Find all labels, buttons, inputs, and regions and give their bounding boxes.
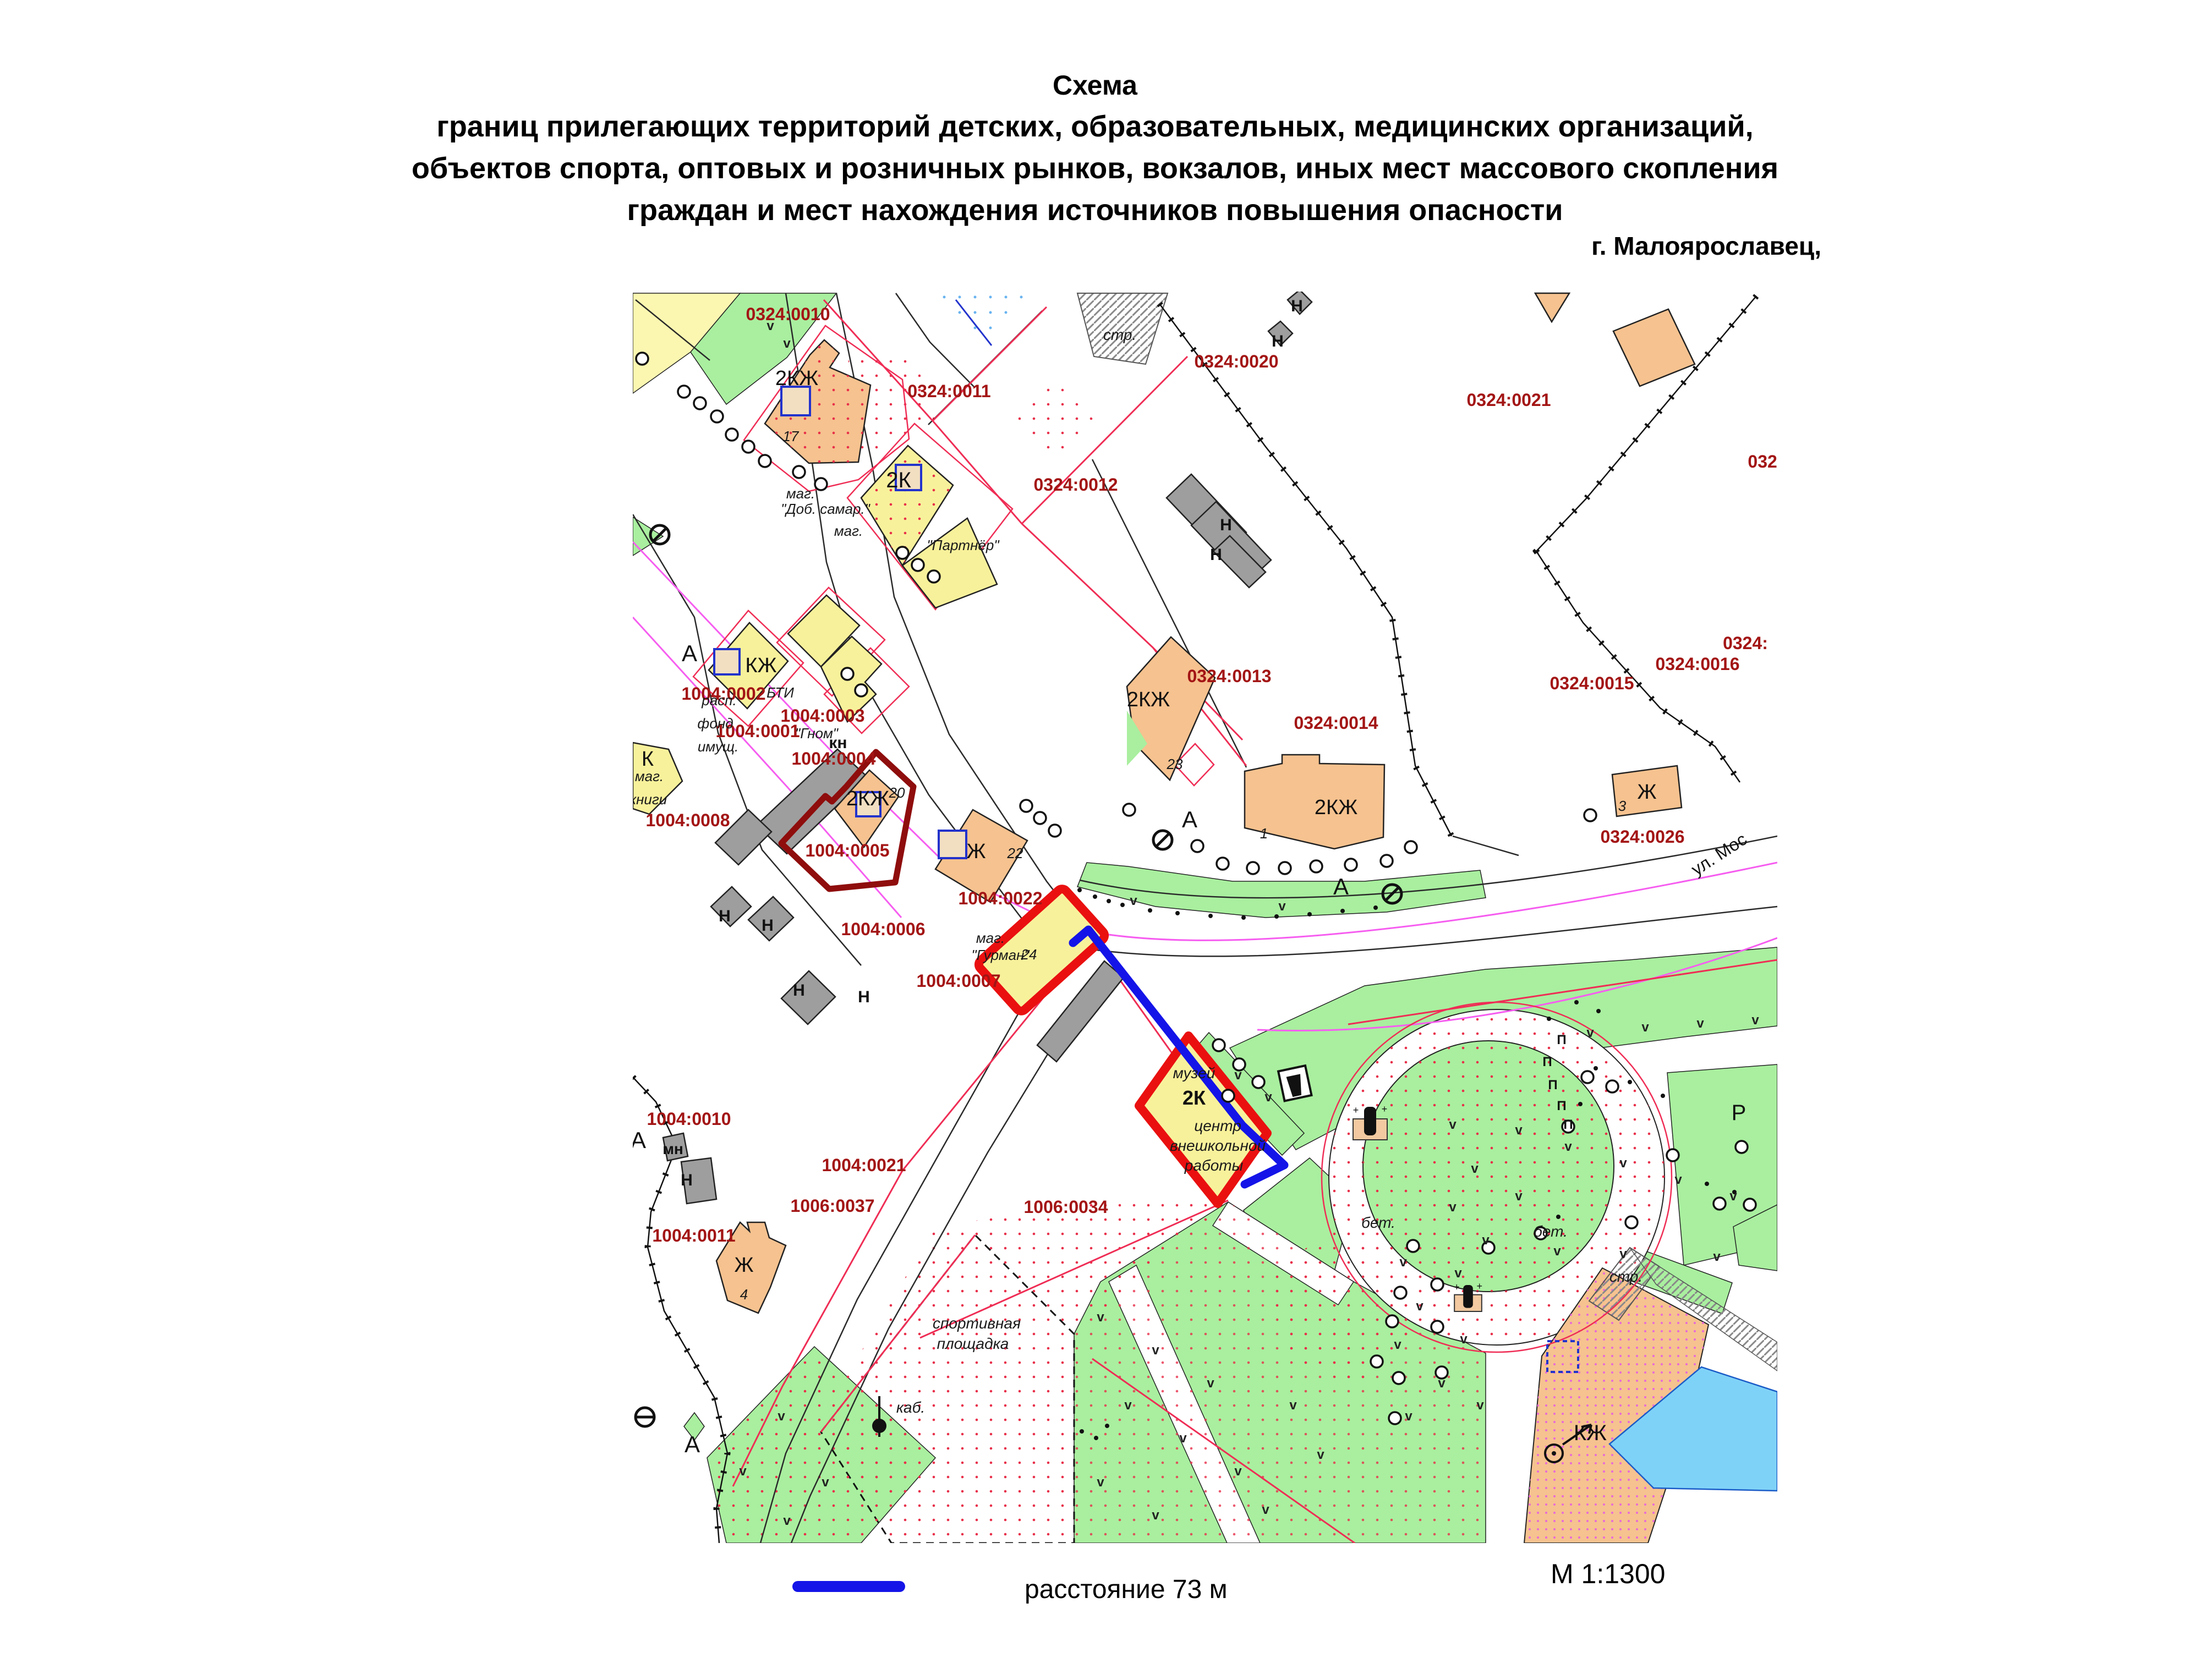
- grass-icon: v: [1471, 1161, 1479, 1176]
- map-label: КЖ: [1574, 1421, 1607, 1445]
- grass-icon: v: [1234, 1068, 1242, 1083]
- map-label: Н: [719, 907, 731, 925]
- grass-icon: v: [1449, 1200, 1457, 1215]
- grass-icon: v: [1476, 1398, 1484, 1413]
- map-label: 17: [783, 428, 800, 444]
- map-label: Н: [762, 916, 774, 935]
- grass-icon: v: [1482, 1233, 1490, 1248]
- map-label: 1004:0007: [916, 971, 1000, 991]
- bush-icon: [1556, 1215, 1561, 1219]
- sign-frame-symbol: [1278, 1066, 1311, 1101]
- map-label: Ж: [966, 840, 985, 863]
- map-label: Н: [1210, 546, 1222, 564]
- map-label: Н: [1220, 516, 1232, 534]
- tree-icon: [1389, 1412, 1401, 1424]
- map-label: 0324:0020: [1194, 352, 1278, 371]
- tree-icon: [815, 478, 827, 490]
- map-label: 1004:0010: [647, 1109, 731, 1129]
- map-scale-label: М 1:1300: [1551, 1558, 1665, 1590]
- map-label: 2КЖ: [775, 367, 818, 390]
- map-label: 0324:0021: [1466, 390, 1551, 410]
- grass-icon: v: [1130, 893, 1137, 908]
- map-label: площадка: [937, 1335, 1009, 1352]
- map-label: 0324:0011: [907, 381, 990, 401]
- bush-icon: [1208, 914, 1213, 918]
- map-label: К: [642, 748, 654, 771]
- vent-square-icon: [781, 387, 810, 415]
- map-label: 0324:: [1723, 633, 1768, 653]
- legend-distance-line-swatch: [792, 1581, 905, 1592]
- map-label: Н: [1272, 332, 1284, 350]
- page-title-line2: границ прилегающих территорий детских, о…: [0, 106, 2190, 147]
- svg-text:+: +: [1382, 1103, 1388, 1114]
- tree-icon: [1393, 1372, 1405, 1384]
- grass-icon: v: [1207, 1376, 1214, 1391]
- tree-icon: [1247, 862, 1259, 874]
- map-label: музей: [1173, 1064, 1216, 1081]
- grass-icon: v: [1289, 1398, 1297, 1413]
- map-label: 0324: [1748, 452, 1787, 471]
- map-label: работы: [1184, 1157, 1244, 1174]
- tree-icon: [1049, 825, 1061, 837]
- tree-icon: [1735, 1141, 1748, 1153]
- map-label: Н: [858, 988, 870, 1006]
- monument-icon: ++: [1353, 1103, 1388, 1140]
- tree-icon: [1381, 855, 1393, 867]
- bench-icon: П: [1563, 1117, 1573, 1132]
- map-label: расп.: [701, 692, 736, 709]
- grass-icon: v: [1460, 1332, 1468, 1347]
- tree-icon: [855, 684, 867, 696]
- grass-icon: v: [1454, 1266, 1462, 1281]
- bush-icon: [1077, 888, 1082, 892]
- tree-icon: [636, 353, 648, 365]
- bush-icon: [1705, 1182, 1709, 1186]
- map-label: 0324:0014: [1294, 713, 1378, 733]
- map-label: маг.: [834, 523, 863, 539]
- tree-icon: [1713, 1198, 1726, 1210]
- map-label: имущ.: [698, 738, 738, 755]
- bush-icon: [1307, 912, 1312, 916]
- map-label: Ж: [734, 1254, 753, 1277]
- grass-icon: v: [1729, 1189, 1737, 1204]
- map-label: маг.: [786, 485, 815, 502]
- svg-text:+: +: [1353, 1105, 1359, 1116]
- map-label: спортивная: [933, 1315, 1021, 1332]
- bush-icon: [1148, 908, 1152, 913]
- tree-icon: [1581, 1071, 1594, 1083]
- map-label: "Доб. самар.": [781, 501, 870, 517]
- grass-icon: v: [1234, 1464, 1242, 1479]
- bush-icon: [1093, 894, 1097, 899]
- grass-icon: v: [1553, 1244, 1561, 1259]
- bush-icon: [1105, 1424, 1109, 1428]
- map-label: 1004:0006: [841, 919, 925, 939]
- page-title-line4: граждан и мест нахождения источников пов…: [0, 189, 2190, 231]
- grass-icon: v: [739, 1464, 747, 1479]
- bush-icon: [1574, 1000, 1579, 1004]
- tree-icon: [711, 410, 723, 422]
- city-label: г. Малоярославец,: [0, 231, 1821, 261]
- bush-icon: [1107, 899, 1111, 903]
- grass-icon: v: [1262, 1502, 1269, 1517]
- grass-icon: v: [822, 1475, 829, 1490]
- map-label: стр.: [1103, 326, 1136, 343]
- grass-icon: v: [1751, 1013, 1759, 1028]
- grass-icon: v: [1152, 1343, 1159, 1358]
- svg-text:+: +: [1477, 1281, 1483, 1292]
- map-label: 23: [1167, 756, 1183, 772]
- tree-icon: [1222, 1090, 1234, 1102]
- bush-icon: [1596, 1009, 1601, 1013]
- map-label: 0324:0012: [1033, 475, 1118, 495]
- bush-icon: [1628, 1080, 1632, 1084]
- map-label: 20: [889, 784, 905, 801]
- grass-icon: v: [1515, 1123, 1523, 1138]
- grass-icon: v: [1097, 1310, 1104, 1325]
- map-label: книги: [629, 791, 667, 808]
- grass-icon: v: [1152, 1508, 1159, 1523]
- tree-icon: [1371, 1355, 1383, 1368]
- grass-icon: v: [1438, 1376, 1446, 1391]
- bush-icon: [1373, 905, 1378, 910]
- grass-icon: v: [1586, 1025, 1594, 1040]
- map-label: маг.: [635, 768, 664, 784]
- map-label: 2КЖ: [846, 787, 889, 810]
- tree-icon: [1405, 841, 1417, 853]
- map-label: А: [682, 640, 697, 666]
- tree-icon: [1606, 1080, 1618, 1092]
- bush-icon: [1340, 909, 1345, 913]
- bush-icon: [1175, 911, 1180, 915]
- tree-icon: [1345, 859, 1357, 871]
- bench-icon: П: [1548, 1078, 1557, 1092]
- bush-icon: [1120, 903, 1125, 907]
- grass-icon: v: [1399, 1255, 1407, 1270]
- bush-icon: [1661, 1094, 1665, 1098]
- map-label: 4: [740, 1286, 748, 1303]
- bush-icon: [1094, 1436, 1098, 1440]
- map-label: 1: [1260, 825, 1268, 842]
- map-label: 2К: [886, 468, 911, 492]
- map-label: бет.: [1534, 1223, 1568, 1240]
- map-label: А: [631, 1127, 646, 1153]
- page-title: Схема: [0, 65, 2190, 106]
- map-label: маг.: [976, 930, 1005, 946]
- grass-icon: v: [1124, 1398, 1132, 1413]
- map-label: А: [685, 1431, 700, 1457]
- map-label: 0324:0015: [1550, 673, 1634, 693]
- grass-icon: v: [783, 1513, 791, 1528]
- tree-icon: [1191, 840, 1203, 852]
- grass-icon: v: [1278, 899, 1286, 914]
- map-label: Р: [1732, 1101, 1746, 1125]
- grass-icon: v: [1405, 1409, 1412, 1424]
- grass-icon: v: [1317, 1447, 1324, 1462]
- map-label: внешкольной: [1170, 1137, 1266, 1154]
- tree-icon: [1252, 1076, 1264, 1088]
- map-label: 1004:0022: [958, 888, 1042, 908]
- map-label: Н: [681, 1171, 693, 1189]
- grass-icon: v: [1416, 1299, 1423, 1314]
- tree-icon: [742, 441, 754, 453]
- bench-icon: П: [1557, 1099, 1566, 1113]
- grass-icon: v: [1713, 1249, 1721, 1264]
- map-label: 0324:0010: [746, 304, 830, 324]
- tree-icon: [726, 429, 738, 441]
- map-label: "Гном": [795, 725, 839, 742]
- bush-icon: [1594, 1066, 1598, 1070]
- map-label: 2КЖ: [1127, 688, 1170, 711]
- bush-icon: [1241, 915, 1246, 920]
- map-label: 22: [1007, 845, 1023, 861]
- tree-icon: [1279, 862, 1291, 874]
- svg-text:+: +: [1454, 1282, 1460, 1293]
- map-label: "Партнёр": [927, 537, 1000, 553]
- grass-icon: v: [778, 1409, 785, 1424]
- map-label: 3: [1618, 798, 1627, 814]
- grass-icon: v: [783, 336, 791, 351]
- grass-icon: v: [1641, 1020, 1649, 1035]
- tree-icon: [678, 386, 690, 398]
- tree-icon: [759, 455, 771, 467]
- tree-icon: [1034, 812, 1046, 824]
- map-label: стр.: [1609, 1268, 1642, 1285]
- map-label: 1006:0034: [1023, 1197, 1108, 1217]
- map-label: 2К: [1182, 1086, 1206, 1109]
- tree-icon: [841, 668, 853, 680]
- map-label: 2КЖ: [1315, 796, 1357, 819]
- monument-icon: ++: [1454, 1281, 1482, 1311]
- map-label: А: [1333, 874, 1349, 899]
- bush-icon: [1578, 1102, 1583, 1106]
- tree-icon: [1310, 860, 1322, 872]
- tree-icon: [1431, 1278, 1443, 1291]
- tree-icon: [1123, 804, 1135, 816]
- map-label: "Гурман": [971, 947, 1030, 963]
- map-label: 1004:0008: [645, 810, 730, 830]
- legend-distance-label: расстояние 73 м: [1025, 1574, 1228, 1605]
- tree-icon: [928, 570, 940, 583]
- grass-icon: v: [1097, 1475, 1104, 1490]
- grass-icon: v: [1619, 1156, 1627, 1171]
- map-label: 1004:0021: [822, 1155, 906, 1175]
- vent-square-icon: [939, 831, 966, 858]
- map-label: каб.: [896, 1399, 925, 1416]
- map-label: 0324:0013: [1187, 666, 1271, 686]
- tree-icon: [694, 397, 706, 409]
- grass-icon: v: [1564, 1139, 1572, 1154]
- tree-icon: [1584, 809, 1596, 821]
- map-label: А: [1182, 806, 1197, 832]
- grass-icon: v: [1394, 1337, 1401, 1352]
- tree-icon: [1386, 1315, 1398, 1327]
- map-label: Ж: [1637, 781, 1656, 804]
- map-label: 1004:0005: [805, 841, 889, 860]
- tree-icon: [793, 466, 805, 478]
- grass-icon: v: [1515, 1189, 1523, 1204]
- tree-icon: [1625, 1216, 1638, 1228]
- grass-icon: v: [1619, 1247, 1627, 1261]
- tree-icon: [1431, 1321, 1443, 1333]
- tree-icon: [1667, 1149, 1679, 1161]
- grass-icon: v: [1179, 1431, 1187, 1446]
- bench-icon: П: [1542, 1055, 1552, 1069]
- tree-icon: [1394, 1287, 1406, 1299]
- page-title-line3: объектов спорта, оптовых и розничных рын…: [0, 147, 2190, 189]
- grass-icon: v: [1674, 1172, 1682, 1187]
- grass-icon: v: [1449, 1117, 1457, 1132]
- tree-icon: [912, 559, 924, 571]
- bench-icon: П: [1557, 1033, 1566, 1047]
- map-label: 1004:0011: [652, 1226, 735, 1245]
- map-label: 1004:0003: [780, 706, 864, 726]
- tree-icon: [1744, 1199, 1756, 1211]
- map-label: Н: [1291, 297, 1303, 315]
- tree-icon: [1217, 858, 1229, 870]
- grass-icon: v: [1264, 1090, 1272, 1105]
- map-label: бет.: [1361, 1214, 1395, 1231]
- tree-icon: [896, 547, 908, 559]
- map-label: фонд: [697, 715, 733, 732]
- map-label: КЖ: [745, 654, 776, 677]
- tree-icon: [1020, 800, 1032, 812]
- map-label: центр: [1194, 1117, 1241, 1134]
- bush-icon: [1274, 914, 1279, 919]
- grass-icon: v: [1696, 1016, 1704, 1031]
- vent-square-icon: [714, 649, 740, 674]
- map-label: мн: [663, 1140, 683, 1157]
- tree-icon: [1213, 1039, 1225, 1051]
- map-label: 0324:0016: [1655, 654, 1739, 674]
- title-block: Схема границ прилегающих территорий детс…: [0, 65, 2190, 231]
- bush-icon: [1547, 1017, 1551, 1021]
- map-label: Н: [793, 981, 805, 1000]
- bush-icon: [1080, 1429, 1084, 1434]
- map-label: 0324:0026: [1600, 827, 1684, 847]
- map-label: 1006:0037: [790, 1196, 874, 1216]
- map-label: БТИ: [766, 684, 794, 701]
- tree-icon: [1407, 1240, 1419, 1252]
